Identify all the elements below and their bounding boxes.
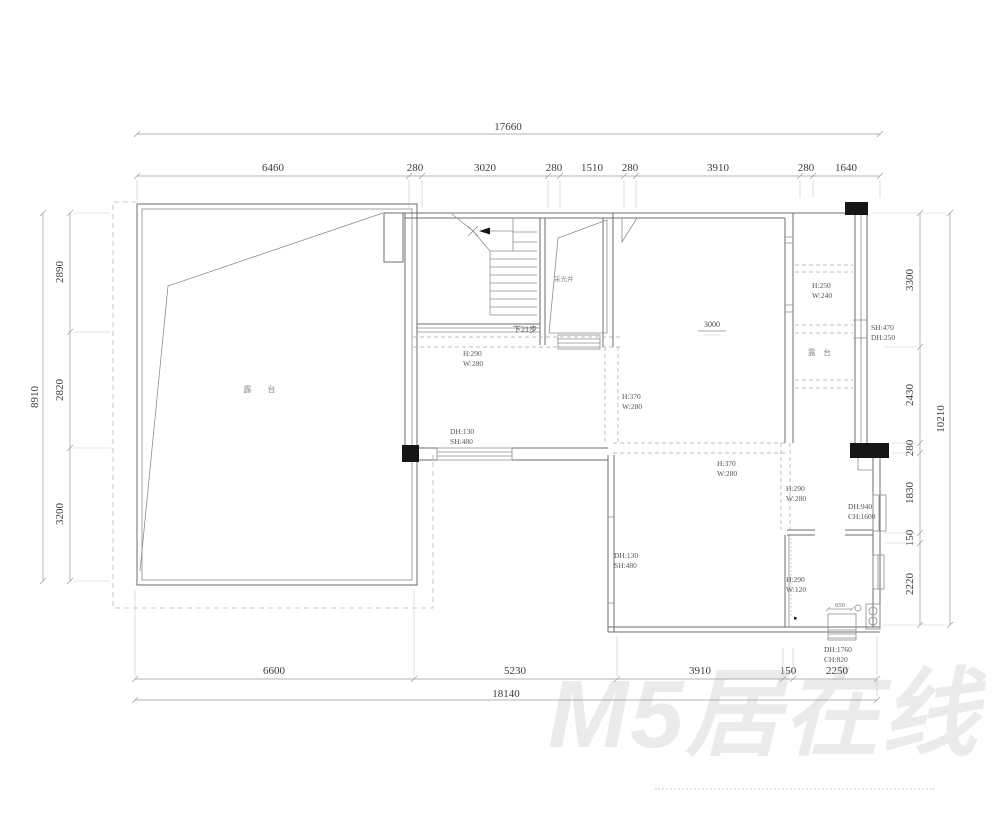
dim-label: 6460 <box>262 162 285 174</box>
opening-label: CH:1600 <box>848 512 876 521</box>
bath-fixtures <box>826 604 880 640</box>
dim-label: 2220 <box>904 573 916 596</box>
wall-notch <box>858 458 873 470</box>
opening-label: H:250 <box>812 281 831 290</box>
opening-label: DH:130 <box>450 427 474 436</box>
staircase: 下21步 <box>384 213 845 445</box>
dimension-bottom: 6600 5230 3910 150 2250 18140 <box>132 590 880 703</box>
dim-label: 280 <box>546 162 563 174</box>
opening-label: H:290 <box>463 349 482 358</box>
stair-treads <box>490 218 537 315</box>
opening-label: W:280 <box>463 359 483 368</box>
opening-label: H:290 <box>786 575 805 584</box>
opening-label: W:120 <box>786 585 806 594</box>
dimension-top: 17660 6460 280 3020 280 1510 280 3910 28… <box>134 121 883 208</box>
opening-3 <box>613 443 787 453</box>
dim-label: 1830 <box>904 482 916 505</box>
opening-2 <box>605 347 618 443</box>
window-east-2 <box>873 555 884 589</box>
dim-label: 150 <box>780 665 797 677</box>
corridor-south-wall <box>419 448 608 460</box>
floorplan-drawing: 17660 6460 280 3020 280 1510 280 3910 28… <box>0 0 1000 833</box>
opening-label: DH:130 <box>614 551 638 560</box>
stair-break-cross <box>468 226 478 236</box>
opening-label: SH:480 <box>450 437 473 446</box>
column <box>402 445 419 462</box>
dim-label: 3910 <box>707 162 730 174</box>
dim-label: 3020 <box>474 162 497 174</box>
dim-label: 280 <box>904 439 916 456</box>
opening-label: W:280 <box>786 494 806 503</box>
wall-return <box>384 213 403 262</box>
room-top-right: 3000 <box>622 213 793 443</box>
dim-label: 6600 <box>263 665 286 677</box>
dim-label: 280 <box>622 162 639 174</box>
dim-label: 1640 <box>835 162 858 174</box>
right-terrace: 露 台 <box>795 202 867 443</box>
dim-label: 2430 <box>904 384 916 407</box>
dim-label: 2820 <box>54 379 66 402</box>
dim-label: 150 <box>904 529 916 546</box>
opening-label: 650 <box>835 602 845 609</box>
divider-wall <box>787 530 873 535</box>
stair-direction-arrow <box>479 228 490 235</box>
right-terrace-label: 露 台 <box>808 347 834 357</box>
light-well: 采光井 <box>549 213 613 349</box>
dim-label: 3300 <box>904 269 916 292</box>
window-south <box>437 448 512 460</box>
opening-label: DH:1760 <box>824 645 852 654</box>
wall-opening-ticks <box>785 237 793 312</box>
opening-label: DH:250 <box>871 333 895 342</box>
opening-label: H:290 <box>786 484 805 493</box>
dim-label: 2250 <box>826 665 849 677</box>
opening-annotations: H:290 W:280 H:370 W:280 H:370 W:280 H:29… <box>450 281 895 664</box>
opening-1 <box>413 337 620 347</box>
column <box>850 443 889 458</box>
stairs-down-note: 下21步 <box>513 325 537 334</box>
marker-dot <box>794 617 797 620</box>
opening-label: SH:480 <box>614 561 637 570</box>
window-west-ticks <box>608 517 614 603</box>
dim-label: 1510 <box>581 162 604 174</box>
dim-left-total: 8910 <box>29 386 41 409</box>
opening-label: CH:820 <box>824 655 848 664</box>
small-fixture <box>855 605 861 611</box>
dim-top-total: 17660 <box>494 121 522 133</box>
light-well-label: 采光井 <box>554 274 574 283</box>
column <box>845 202 868 215</box>
dim-label: 280 <box>798 162 815 174</box>
terrace <box>113 202 433 608</box>
dim-label: 5230 <box>504 665 527 677</box>
dim-label: 280 <box>407 162 424 174</box>
terrace-overhang-dashed <box>113 202 433 608</box>
dim-label: 3200 <box>54 503 66 526</box>
opening-label: W:280 <box>717 469 737 478</box>
dim-right-total: 10210 <box>935 405 947 433</box>
door-swing <box>622 218 637 242</box>
dim-label: 2890 <box>54 261 66 284</box>
dim-label: 3910 <box>689 665 712 677</box>
opening-label: H:370 <box>717 459 736 468</box>
opening-label: DH:940 <box>848 502 872 511</box>
dim-bottom-total: 18140 <box>492 688 520 700</box>
opening-label: H:370 <box>622 392 641 401</box>
opening-label: SH:470 <box>871 323 894 332</box>
elevation-mark: 3000 <box>704 320 720 329</box>
dimension-left: 8910 2890 2820 3200 <box>29 210 110 584</box>
terrace-label: 露 台 <box>244 384 283 394</box>
opening-label: W:240 <box>812 291 832 300</box>
opening-label: W:280 <box>622 402 642 411</box>
floorplan-canvas: M5居在线 17660 6460 280 3020 280 1510 280 3… <box>0 0 1000 833</box>
